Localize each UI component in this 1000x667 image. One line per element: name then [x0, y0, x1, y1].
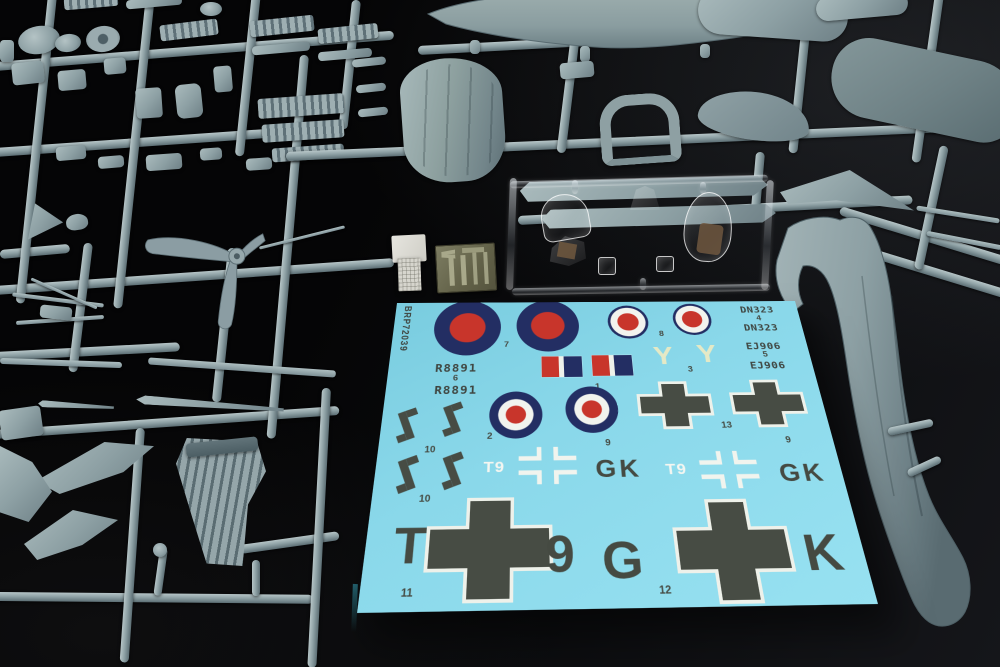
photo-etch-seatbelt	[483, 252, 489, 284]
oil-cooler-part	[598, 91, 683, 166]
instrument-part	[145, 153, 182, 171]
cockpit-part	[0, 40, 14, 62]
exhaust-stack-part	[261, 119, 344, 143]
balkenkreuz-decal	[673, 502, 799, 601]
number-label: 4	[746, 314, 771, 322]
clear-frame-stub	[640, 278, 646, 290]
number-label: 5	[752, 350, 778, 358]
cockpit-part	[200, 147, 223, 161]
cockpit-part	[57, 69, 87, 91]
clear-small-part	[656, 256, 674, 272]
photo-etch-buckle	[462, 247, 484, 253]
fuselage-code-letter-decal: K	[792, 527, 856, 580]
sprue-stub	[700, 44, 710, 58]
roundel-type-c-decal	[606, 306, 650, 339]
roundel-type-a-decal	[565, 386, 620, 433]
exhaust-stack-part	[257, 93, 344, 119]
cockpit-part	[126, 0, 183, 9]
cockpit-part	[98, 155, 125, 169]
number-label: 12	[650, 583, 681, 596]
pitot-part	[38, 400, 114, 411]
sprue-stub	[252, 560, 260, 596]
number-label: 11	[391, 586, 422, 599]
antenna-part	[259, 225, 345, 249]
spinner-part	[65, 213, 89, 232]
intake-part	[559, 61, 594, 80]
photo-etch-buckle	[441, 250, 455, 260]
cockpit-part	[246, 157, 273, 171]
fuselage-code-letter-decal: G	[595, 535, 652, 589]
clear-small-part	[598, 257, 616, 275]
sprue-stub	[153, 543, 167, 557]
fin-flash-decal	[592, 355, 634, 376]
resin-grille-part	[397, 258, 421, 292]
exhaust-stack-part	[64, 0, 119, 10]
swastika-half-decal	[433, 449, 473, 492]
cowling-seam-lines	[406, 61, 502, 179]
wing-fairing-part	[0, 442, 52, 522]
number-label: 8	[649, 329, 673, 337]
balkenkreuz-decal	[639, 384, 714, 427]
serial-decal: DN323	[729, 322, 793, 333]
gear-leg-part	[0, 358, 122, 368]
number-label: 2	[476, 431, 502, 441]
outline-cross-decal	[518, 446, 579, 486]
number-label: 9	[774, 435, 802, 445]
photo-etch-seatbelt	[472, 252, 478, 284]
model-kit-photo: BRP72039 7 8 DN323 4 DN323 EJ906 5 EJ906…	[0, 0, 1000, 667]
exhaust-stack-part	[249, 15, 314, 38]
sprue-runner	[239, 531, 339, 554]
number-label: 3	[678, 365, 703, 374]
sprue-stub	[470, 40, 480, 54]
cross-bar	[466, 501, 510, 600]
serial-decal: R8891	[418, 384, 494, 397]
sprue-stub	[580, 46, 590, 62]
swastika-half-decal	[388, 453, 427, 496]
fin-flash-decal	[541, 356, 582, 377]
sprue-runner	[0, 126, 305, 157]
code-t9-decal: T9	[651, 460, 702, 478]
roundel-type-b-decal	[516, 301, 580, 352]
letter-y-decal: Y	[647, 342, 681, 371]
photo-etch-seatbelt	[460, 255, 467, 285]
exhaust-stack-part	[159, 19, 219, 42]
cockpit-part	[103, 57, 126, 75]
rocket-part	[356, 82, 387, 93]
sprue-runner	[0, 406, 339, 439]
propeller-blade	[215, 256, 241, 329]
wheel-part	[200, 2, 222, 16]
number-label: 10	[416, 444, 443, 454]
decal-product-code: BRP72039	[393, 306, 413, 385]
number-label: 6	[443, 373, 468, 382]
photo-etch-fret	[435, 242, 497, 293]
code-gk-decal: GK	[583, 455, 656, 485]
cockpit-part	[55, 145, 86, 162]
roundel-type-c-decal	[671, 304, 714, 335]
cockpit-part	[213, 65, 233, 92]
serial-decal: EJ906	[735, 360, 801, 372]
balkenkreuz-decal	[730, 382, 808, 425]
propeller-blade	[145, 234, 237, 267]
fuselage-code-letter-decal: 9	[534, 529, 588, 582]
cockpit-part	[11, 60, 45, 85]
sprue-runner	[307, 388, 331, 667]
decal-sheet: BRP72039 7 8 DN323 4 DN323 EJ906 5 EJ906…	[357, 301, 878, 613]
swastika-half-decal	[389, 406, 427, 446]
number-label: 13	[713, 420, 740, 430]
code-gk-decal: GK	[765, 459, 842, 489]
canopy-reflection	[696, 222, 724, 255]
photo-etch-seatbelt	[448, 258, 454, 286]
gear-leg-part	[148, 357, 336, 377]
wingtip-part	[815, 0, 909, 22]
swastika-half-decal	[434, 400, 472, 439]
clear-frame-bar	[506, 178, 517, 290]
roundel-type-b-decal	[432, 301, 502, 356]
clear-frame-stub	[572, 180, 578, 194]
outline-cross-decal	[697, 450, 763, 490]
number-label: 7	[494, 340, 518, 348]
number-label: 9	[595, 437, 622, 447]
tailplane-part	[24, 510, 118, 560]
wing-fairing-part	[0, 405, 44, 441]
rocket-part	[358, 106, 389, 117]
armored-glass-reflection	[557, 242, 577, 260]
balkenkreuz-decal	[425, 500, 550, 600]
code-t9-decal: T9	[469, 458, 519, 476]
propeller-part	[135, 213, 271, 345]
hub-part	[84, 24, 121, 54]
sprue-runner	[0, 244, 70, 259]
bulkhead-part	[135, 87, 163, 119]
seat-part	[174, 83, 203, 120]
